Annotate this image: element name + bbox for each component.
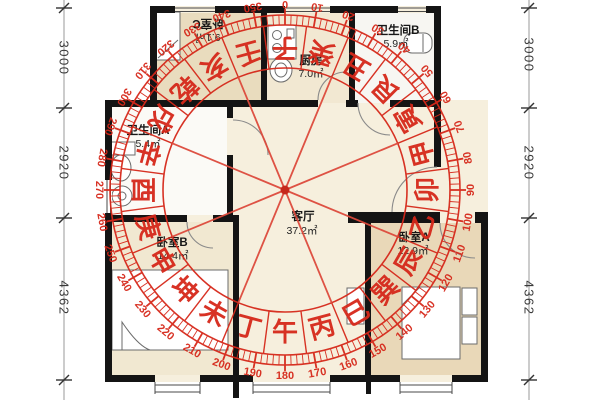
nightstand — [462, 317, 477, 344]
compass-degree-label: 80 — [461, 151, 475, 165]
dim-left-top: 3000 — [57, 41, 72, 76]
toilet-tank — [109, 142, 135, 155]
compass-degree-label: 0 — [282, 0, 288, 10]
compass-degree-label: 280 — [94, 148, 109, 168]
compass-mountain-label: 酉 — [128, 177, 158, 203]
compass-tick — [140, 92, 148, 98]
dim-right-bottom: 4362 — [522, 281, 537, 316]
compass-mountain-label: 卯 — [412, 177, 442, 203]
nightstand — [462, 288, 477, 315]
compass-center-dot — [281, 186, 290, 195]
compass-degree-label: 270 — [93, 181, 105, 199]
compass-degree-label: 90 — [465, 184, 477, 196]
floorplan-with-luopan: 9.1㎡ 卧室C 厨房 7.0㎡ 卫生间B 5.9㎡ 卫生间A 5.4㎡ 客厅 … — [0, 0, 600, 400]
compass-degree-label: 180 — [276, 370, 294, 382]
compass-degree-label: 350 — [243, 0, 263, 14]
floorplan-page: 9.1㎡ 卧室C 厨房 7.0㎡ 卫生间B 5.9㎡ 卫生间A 5.4㎡ 客厅 … — [0, 0, 600, 400]
compass-mountain-label: 午 — [272, 317, 298, 347]
dim-right-top: 3000 — [522, 38, 537, 73]
dim-right-mid: 2920 — [522, 146, 537, 181]
dim-left-mid: 2920 — [57, 146, 72, 181]
compass-degree-label: 260 — [94, 212, 109, 232]
dim-left-bottom: 4362 — [57, 281, 72, 316]
compass-mountain-label: 子 — [272, 33, 298, 63]
compass-degree-label: 10 — [310, 0, 324, 14]
